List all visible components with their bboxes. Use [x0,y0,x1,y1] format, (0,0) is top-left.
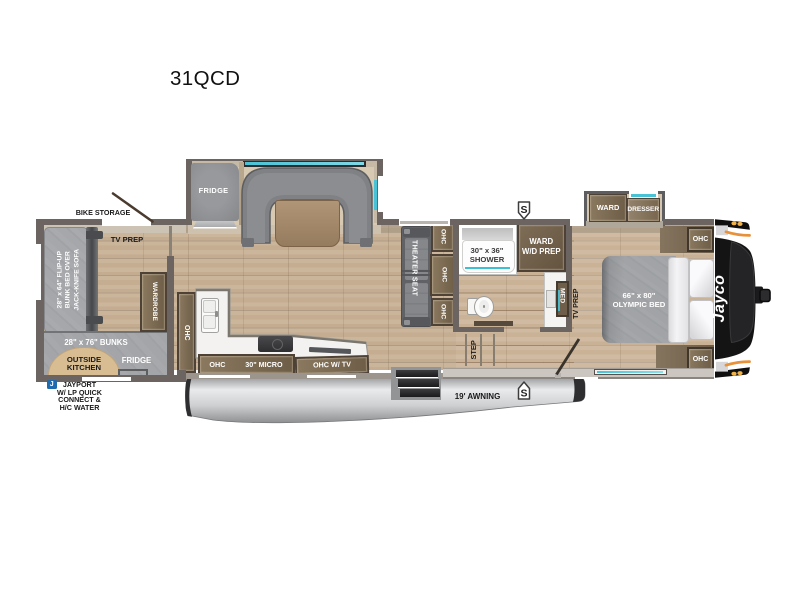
svg-text:Jayco: Jayco [711,275,728,323]
svg-text:S: S [520,204,527,216]
svg-text:S: S [520,387,527,399]
